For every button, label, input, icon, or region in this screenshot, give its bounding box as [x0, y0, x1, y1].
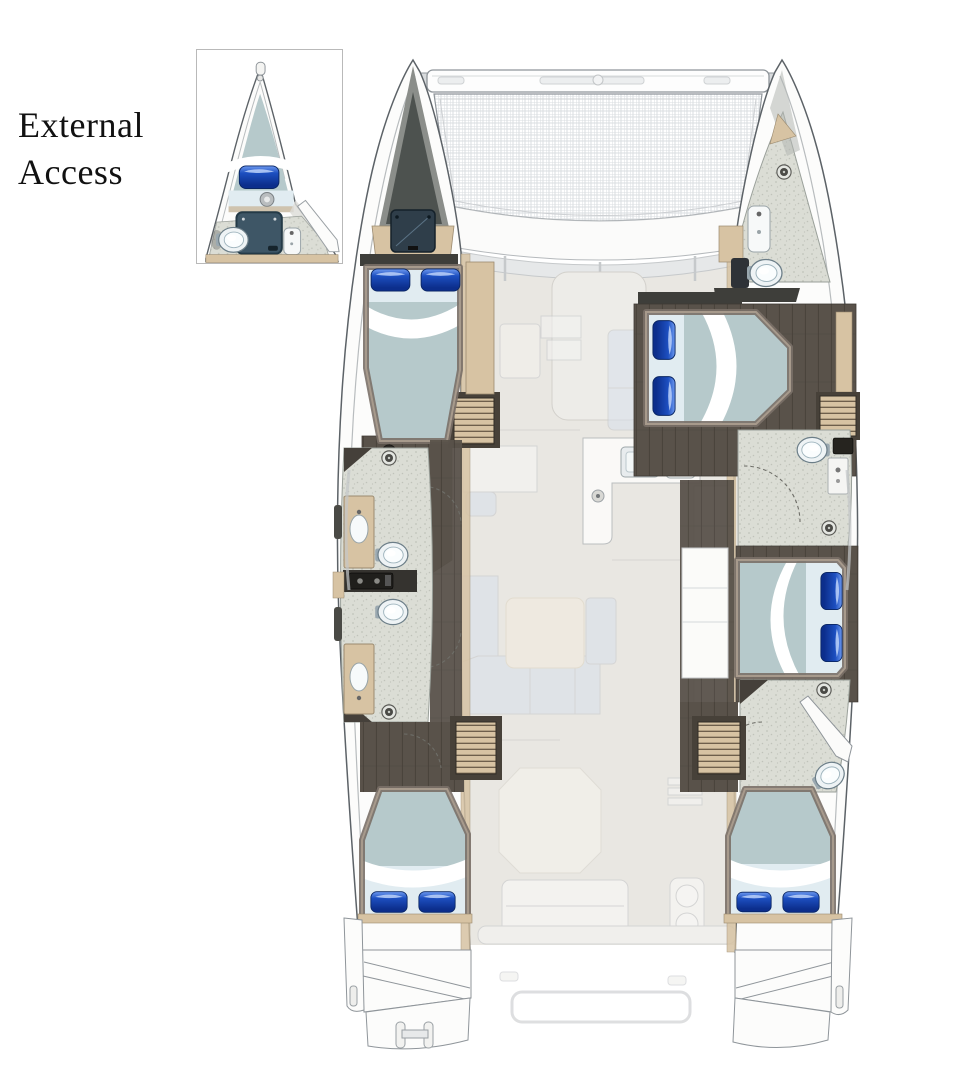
shower-drain — [822, 521, 836, 535]
beam-handle-left — [438, 77, 464, 84]
pillow — [821, 624, 842, 661]
beam-fitting — [593, 75, 603, 85]
stern-rail — [512, 992, 690, 1022]
cleat — [500, 972, 518, 981]
nav-seat — [466, 492, 496, 516]
pillow — [737, 892, 771, 912]
catamaran-floor-plan: External Access — [0, 0, 958, 1080]
pillow — [821, 572, 842, 609]
pillow — [419, 892, 455, 913]
port-heads — [341, 448, 433, 722]
shower-drain — [382, 451, 396, 465]
hull-fitting — [334, 505, 342, 539]
cleat — [668, 976, 686, 985]
saloon-table — [506, 598, 584, 668]
companionway-steps — [456, 722, 496, 774]
companionway-steps — [454, 398, 494, 444]
shower-drain — [817, 683, 831, 697]
wardrobe — [466, 262, 494, 394]
bow-crossbeam — [421, 70, 775, 92]
shower-drain — [382, 705, 396, 719]
trampoline — [434, 94, 762, 221]
shower-drain — [777, 165, 791, 179]
main-plan-svg — [0, 0, 958, 1080]
nav-desk — [463, 446, 537, 492]
pillow — [653, 321, 675, 360]
pillow — [653, 377, 675, 416]
pillow — [371, 892, 407, 913]
ladder-rung — [402, 1030, 428, 1038]
cockpit-table — [499, 768, 601, 873]
pillow — [239, 166, 279, 189]
cockpit-stool — [676, 885, 698, 907]
sink — [350, 515, 368, 543]
starboard-mid-head — [738, 430, 853, 546]
beam-handle-right — [704, 77, 730, 84]
sink — [350, 663, 368, 691]
pillow — [371, 269, 410, 291]
companionway-steps — [698, 722, 740, 774]
aft-track — [478, 926, 736, 944]
heads-hardware — [833, 438, 853, 454]
vanity — [828, 458, 848, 494]
bow-fitting — [256, 62, 265, 75]
port-corridor — [430, 440, 462, 742]
forward-table — [500, 324, 540, 378]
inset-svg — [197, 50, 342, 263]
inset-bow-cabin — [206, 62, 339, 262]
double-berth — [733, 556, 849, 680]
pillow — [783, 892, 819, 913]
external-access-inset — [196, 49, 343, 264]
cabin-cabinets — [682, 548, 728, 678]
hull-fitting — [334, 607, 342, 641]
pillow — [421, 269, 460, 291]
toilet-tank — [731, 258, 749, 288]
